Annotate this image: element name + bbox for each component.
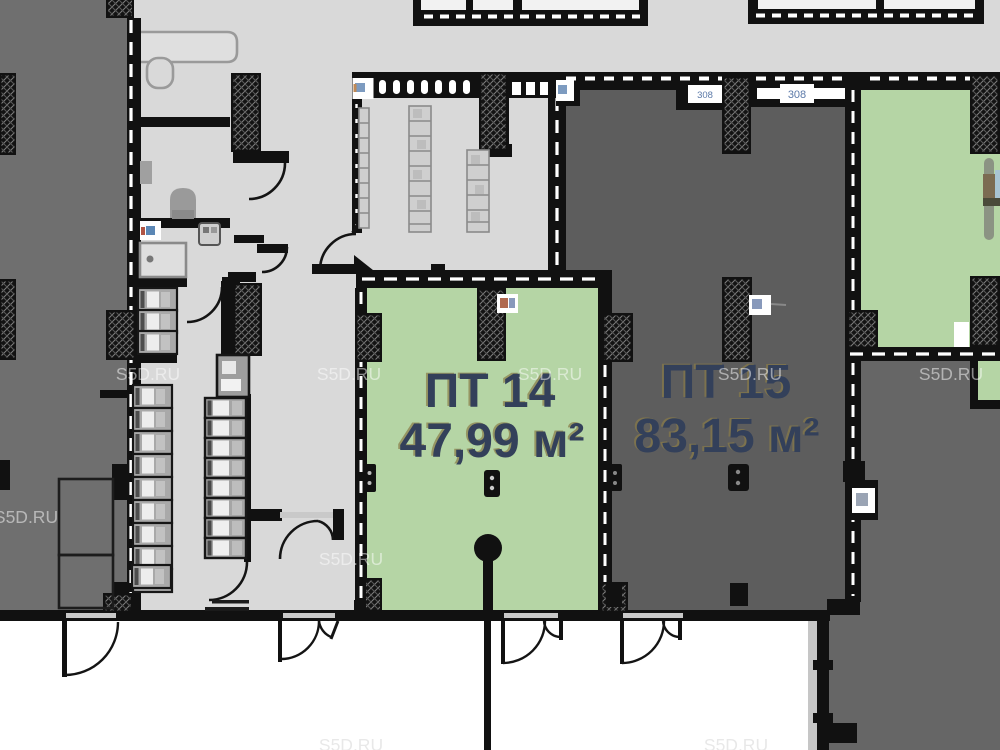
svg-text:308: 308 [788,89,806,101]
svg-text:S5D.RU: S5D.RU [704,735,768,750]
svg-text:S5D.RU: S5D.RU [319,549,383,569]
svg-text:S5D.RU: S5D.RU [116,364,180,384]
svg-text:S5D.RU: S5D.RU [919,364,983,384]
svg-text:83,15 м²: 83,15 м² [635,410,820,463]
svg-text:S5D.RU: S5D.RU [518,364,582,384]
svg-text:S5D.RU: S5D.RU [319,735,383,750]
svg-text:47,99 м²: 47,99 м² [400,415,585,468]
svg-text:S5D.RU: S5D.RU [718,364,782,384]
svg-text:S5D.RU: S5D.RU [0,507,58,527]
svg-text:S5D.RU: S5D.RU [317,364,381,384]
svg-text:308: 308 [697,90,713,101]
